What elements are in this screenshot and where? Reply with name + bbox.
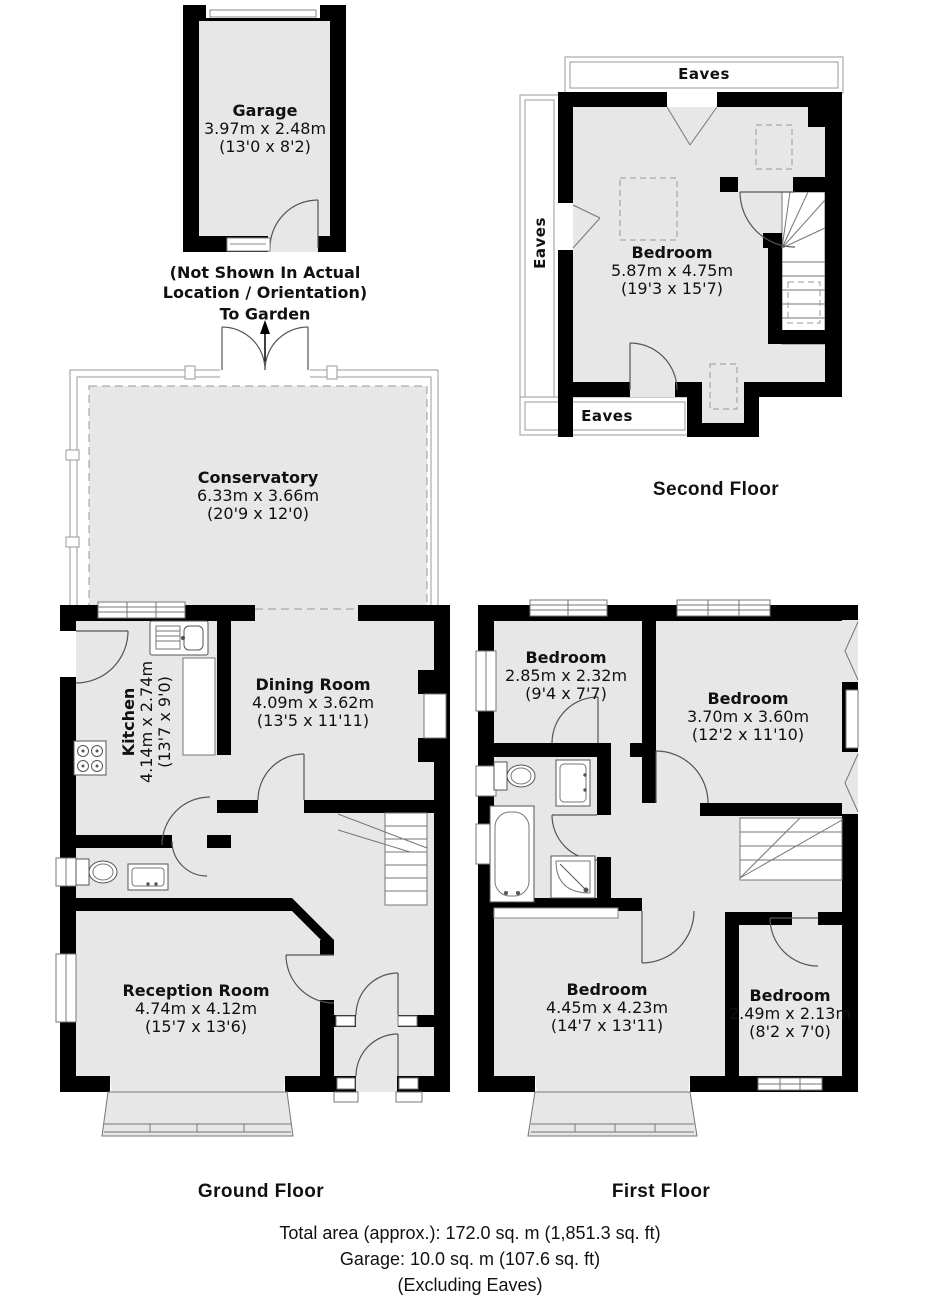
first-floor-title: First Floor [612, 1181, 710, 1203]
second-floor-title: Second Floor [653, 479, 779, 501]
room-size-ft: (15'7 x 13'6) [122, 1018, 269, 1036]
bedroom-bottom-large-label: Bedroom 4.45m x 4.23m (14'7 x 13'11) [546, 981, 668, 1035]
to-garden-label: To Garden [220, 305, 311, 324]
room-name: Bedroom [729, 987, 851, 1005]
garage-door [206, 4, 320, 18]
bathtub-icon [490, 806, 534, 902]
room-name: Bedroom [687, 690, 809, 708]
basin-icon [556, 760, 590, 806]
room-size-m: 5.87m x 4.75m [611, 262, 733, 280]
room-size-m: 3.97m x 2.48m [204, 120, 326, 138]
room-size-m: 3.70m x 3.60m [687, 708, 809, 726]
room-name: Conservatory [197, 469, 319, 487]
bedroom-top-small-label: Bedroom 2.85m x 2.32m (9'4 x 7'7) [505, 649, 627, 703]
floorplan-page: Garage 3.97m x 2.48m (13'0 x 8'2) (Not S… [0, 0, 940, 1303]
eaves-top-label: Eaves [678, 65, 730, 83]
conservatory-label: Conservatory 6.33m x 3.66m (20'9 x 12'0) [197, 469, 319, 523]
floorplan-canvas [0, 0, 940, 1303]
room-size-m: 4.45m x 4.23m [546, 999, 668, 1017]
room-size-m: 4.09m x 3.62m [252, 694, 374, 712]
excluding-eaves-text: (Excluding Eaves) [279, 1272, 660, 1298]
room-size-m: 2.49m x 2.13m [729, 1005, 851, 1023]
room-size-ft: (13'7 x 9'0) [156, 661, 174, 783]
kitchen-counter [183, 658, 215, 755]
room-name: Kitchen [120, 661, 138, 783]
dining-room-label: Dining Room 4.09m x 3.62m (13'5 x 11'11) [252, 676, 374, 730]
garage-note: (Not Shown In Actual Location / Orientat… [163, 263, 367, 303]
bay-window [102, 1092, 293, 1136]
shower-icon [551, 856, 595, 898]
room-size-m: 4.14m x 2.74m [138, 661, 156, 783]
room-name: Bedroom [505, 649, 627, 667]
bedroom-bottom-small-label: Bedroom 2.49m x 2.13m (8'2 x 7'0) [729, 987, 851, 1041]
room-size-ft: (8'2 x 7'0) [729, 1023, 851, 1041]
room-name: Dining Room [252, 676, 374, 694]
bedroom-top-large-label: Bedroom 3.70m x 3.60m (12'2 x 11'10) [687, 690, 809, 744]
room-size-ft: (12'2 x 11'10) [687, 726, 809, 744]
eaves-bottom-label: Eaves [581, 407, 633, 425]
reception-room-label: Reception Room 4.74m x 4.12m (15'7 x 13'… [122, 982, 269, 1036]
room-size-ft: (19'3 x 15'7) [611, 280, 733, 298]
toilet-icon [76, 859, 117, 885]
total-area-text: Total area (approx.): 172.0 sq. m (1,851… [279, 1220, 660, 1246]
room-size-ft: (9'4 x 7'7) [505, 685, 627, 703]
stairs [782, 192, 825, 344]
room-name: Garage [204, 102, 326, 120]
room-name: Bedroom [546, 981, 668, 999]
room-size-ft: (13'5 x 11'11) [252, 712, 374, 730]
room-size-m: 4.74m x 4.12m [122, 1000, 269, 1018]
ground-floor-title: Ground Floor [198, 1181, 324, 1203]
hob-icon [74, 741, 106, 775]
second-floor-bedroom-label: Bedroom 5.87m x 4.75m (19'3 x 15'7) [611, 244, 733, 298]
basin-icon [128, 864, 168, 890]
eaves-left-label: Eaves [531, 217, 549, 269]
room-size-ft: (20'9 x 12'0) [197, 505, 319, 523]
garage-label: Garage 3.97m x 2.48m (13'0 x 8'2) [204, 102, 326, 156]
room-size-ft: (14'7 x 13'11) [546, 1017, 668, 1035]
room-size-m: 6.33m x 3.66m [197, 487, 319, 505]
room-size-ft: (13'0 x 8'2) [204, 138, 326, 156]
room-name: Bedroom [611, 244, 733, 262]
wardrobe [494, 908, 618, 918]
bay-window [528, 1092, 697, 1136]
room-size-m: 2.85m x 2.32m [505, 667, 627, 685]
kitchen-sink-icon [150, 621, 208, 655]
room-name: Reception Room [122, 982, 269, 1000]
garage-area-text: Garage: 10.0 sq. m (107.6 sq. ft) [279, 1246, 660, 1272]
stairs [740, 818, 842, 880]
area-summary: Total area (approx.): 172.0 sq. m (1,851… [279, 1220, 660, 1298]
garage-step [227, 238, 270, 251]
kitchen-label: Kitchen 4.14m x 2.74m (13'7 x 9'0) [120, 661, 174, 783]
